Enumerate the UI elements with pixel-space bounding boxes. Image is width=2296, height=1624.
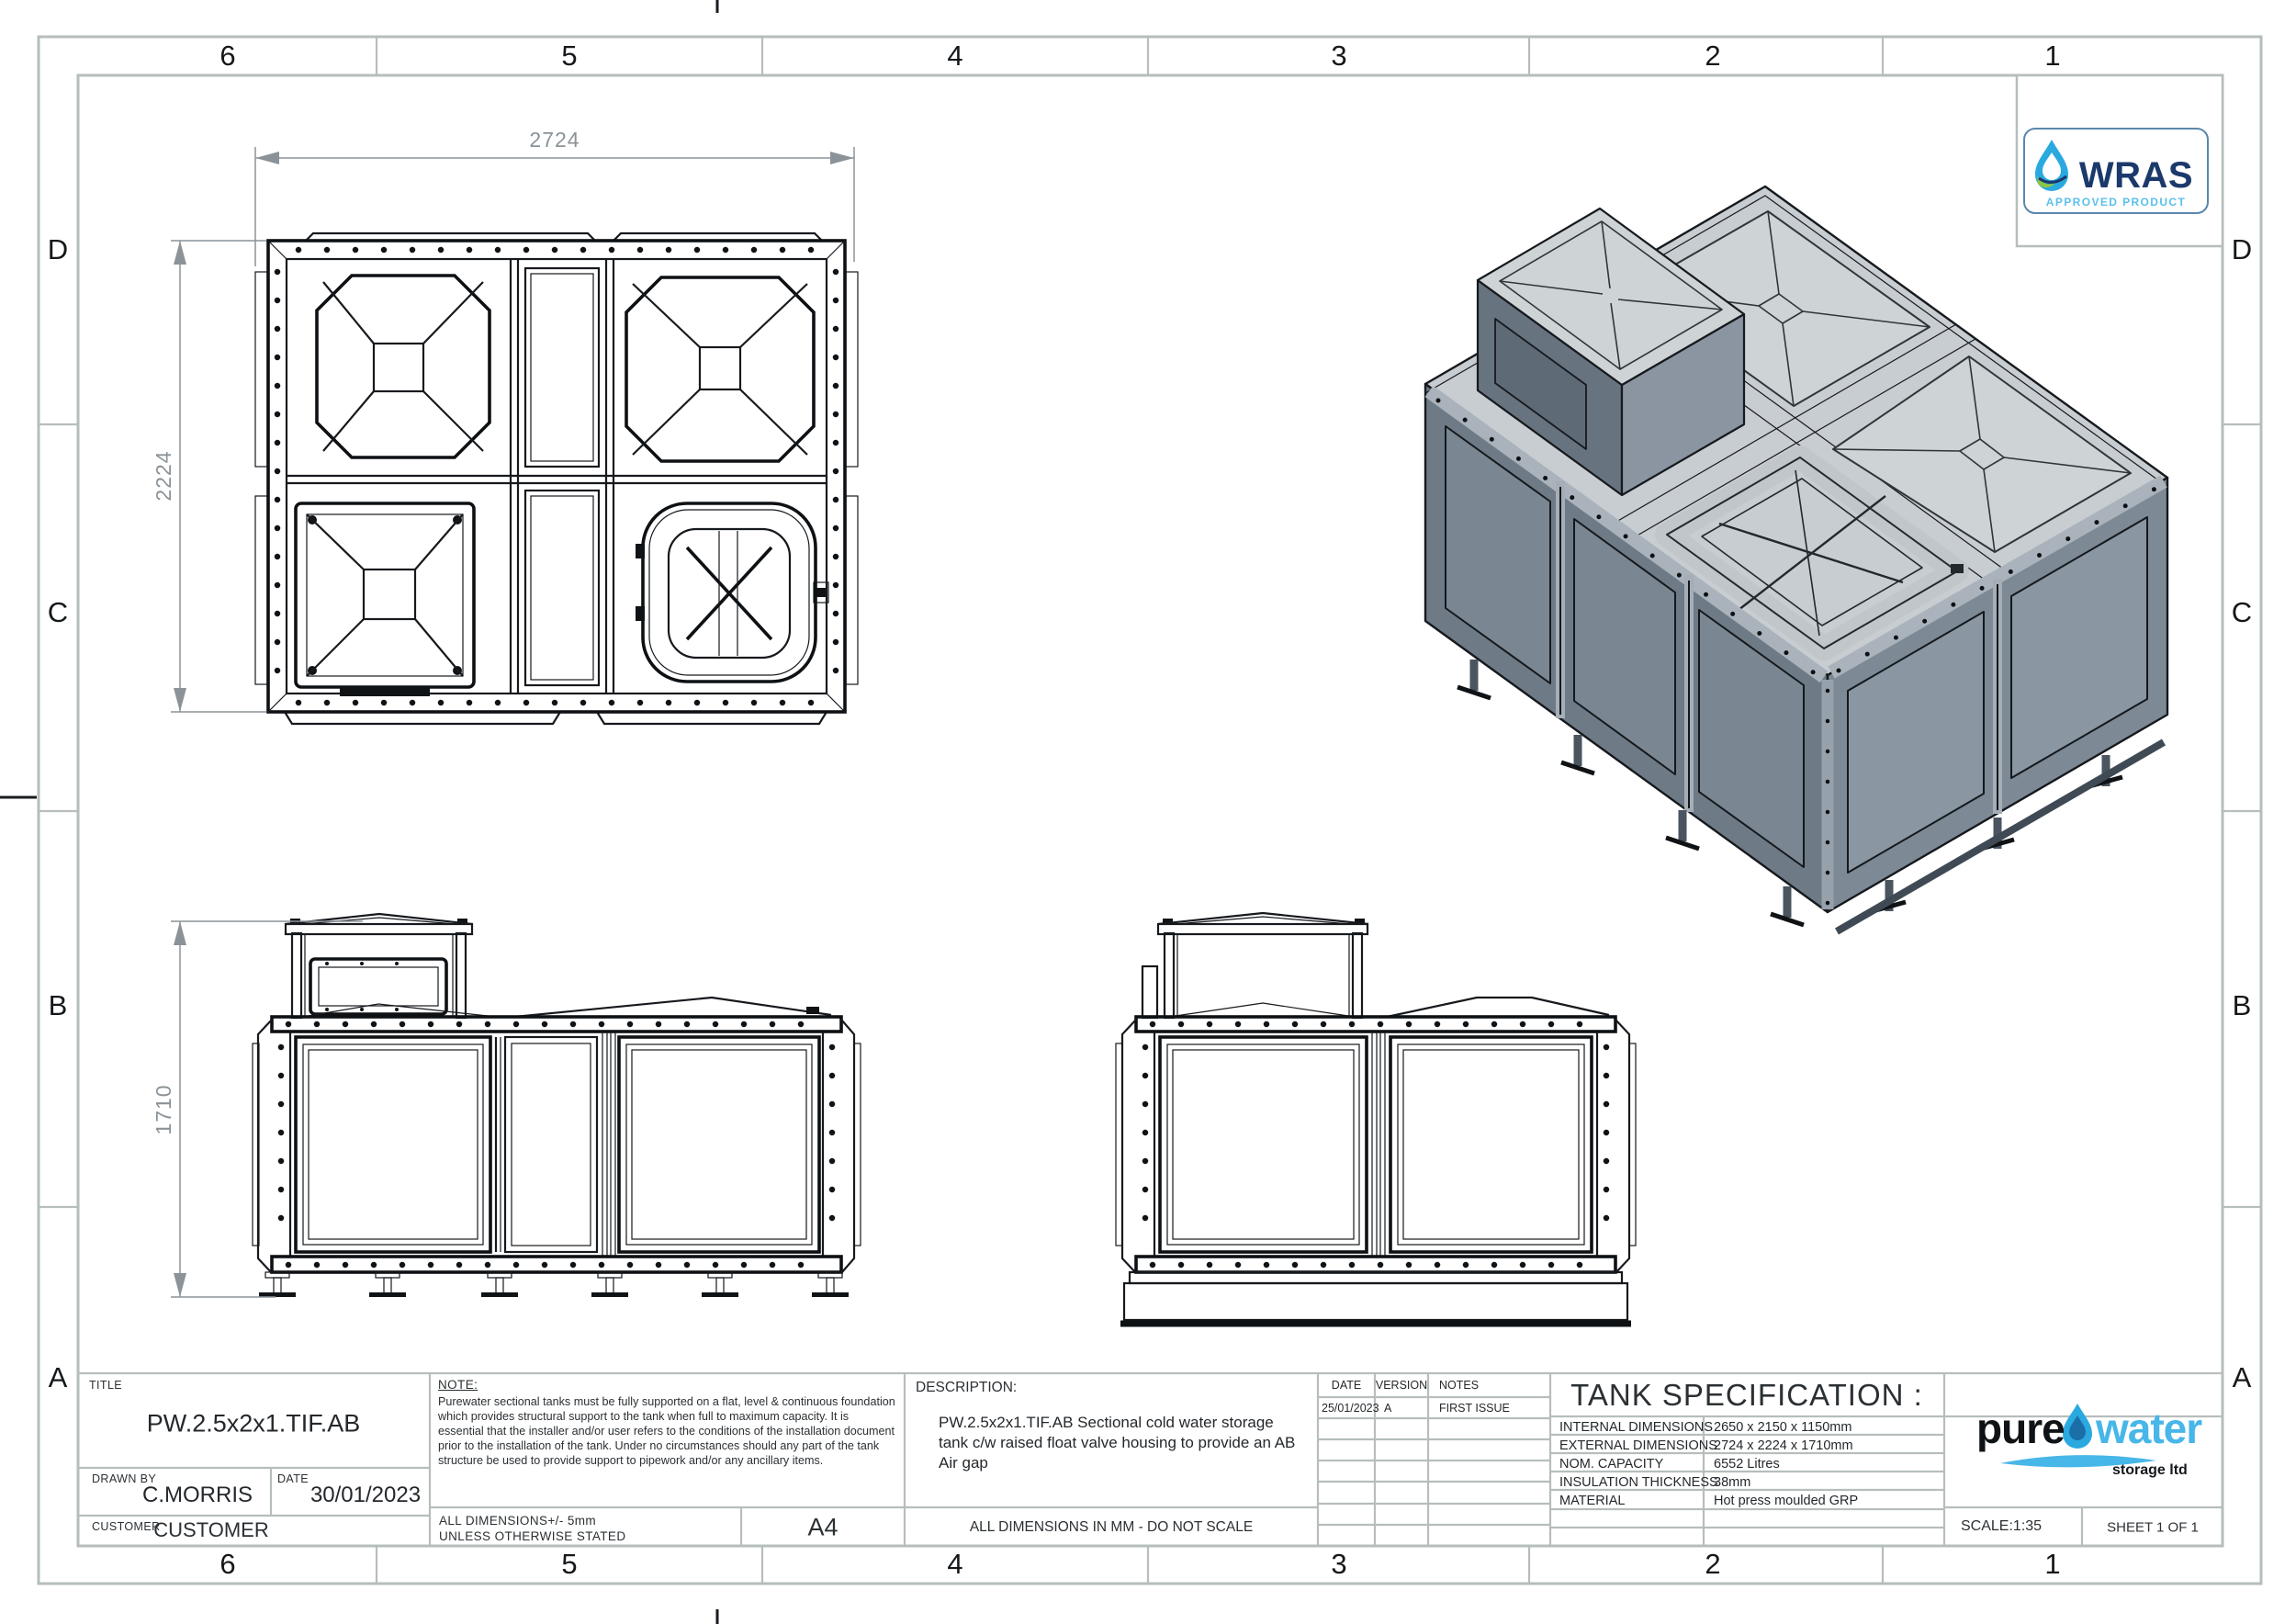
front-elevation-view: 1710 [152,914,861,1297]
spec-value: 2650 x 2150 x 1150mm [1714,1420,1851,1435]
zone-col: 5 [561,39,577,73]
zone-col: 2 [1705,1548,1720,1581]
zone-col: 4 [947,1548,962,1581]
customer-value: CUSTOMER [153,1518,269,1542]
dim-plan-depth: 2224 [152,450,175,501]
dim-plan-width: 2724 [529,128,580,152]
isometric-view [1425,186,2167,931]
note-label: NOTE: [438,1378,478,1392]
customer-label: CUSTOMER [92,1520,161,1533]
wras-name: WRAS [2079,155,2193,196]
zone-col: 1 [2044,1548,2060,1581]
zone-col: 1 [2044,39,2060,73]
logo-pure: pure [1976,1404,2065,1453]
zone-row: B [2233,989,2252,1022]
wras-subtitle: APPROVED PRODUCT [2046,196,2186,209]
spec-value: 2724 x 2224 x 1710mm [1714,1438,1853,1453]
date-value: 30/01/2023 [310,1483,421,1508]
spec-label: EXTERNAL DIMENSIONS [1559,1438,1717,1453]
wras-logo: WRAS APPROVED PRODUCT [2017,75,2223,246]
dims-note: ALL DIMENSIONS IN MM - DO NOT SCALE [970,1519,1253,1536]
adjustable-feet [259,1272,849,1297]
spec-label: INTERNAL DIMENSIONS [1559,1420,1713,1435]
drawing-linework: 2724 2224 [0,0,2296,1624]
float-valve-housing-plan [296,503,474,696]
float-valve-housing-front [286,914,472,1018]
tolerance-line1: ALL DIMENSIONS+/- 5mm [439,1514,596,1528]
zone-row: C [2232,596,2252,629]
paper-size: A4 [807,1514,838,1542]
zone-col: 3 [1331,1548,1346,1581]
rev-date: 25/01/2023 [1322,1402,1379,1415]
drawn-by-value: C.MORRIS [142,1483,253,1508]
scale-value: SCALE:1:35 [1961,1518,2042,1535]
roof-panel-top-right [626,277,814,461]
zone-col: 4 [947,39,962,73]
rev-version: A [1384,1402,1391,1415]
zone-row: B [49,989,68,1022]
zone-row: A [2233,1361,2252,1394]
rev-header-date: DATE [1332,1379,1361,1392]
description-label: DESCRIPTION: [916,1380,1017,1396]
drawing-sheet: 2724 2224 [0,0,2296,1624]
side-elevation-view [1116,913,1636,1324]
spec-value: 6552 Litres [1714,1457,1780,1472]
title-label: TITLE [89,1379,122,1392]
zone-col: 3 [1331,39,1346,73]
zone-row: D [48,233,68,266]
plinth-base [1120,1272,1631,1324]
spec-title: TANK SPECIFICATION : [1570,1378,1923,1413]
zone-col: 6 [219,39,235,73]
plan-dimensions: 2724 2224 [152,128,854,712]
access-hatch-plan [636,503,828,682]
note-text: Purewater sectional tanks must be fully … [438,1394,897,1468]
spec-value: Hot press moulded GRP [1714,1494,1858,1508]
drawing-title: PW.2.5x2x1.TIF.AB [147,1410,361,1438]
rev-header-notes: NOTES [1439,1379,1479,1392]
zone-row: D [2232,233,2252,266]
zone-col: 2 [1705,39,1720,73]
roof-panel-top-left [317,276,490,457]
description-text: PW.2.5x2x1.TIF.AB Sectional cold water s… [939,1413,1301,1473]
spec-label: INSULATION THICKNESS [1559,1475,1718,1490]
logo-water: water [2096,1404,2201,1453]
rev-header-version: VERSION [1376,1379,1427,1392]
sheet-number: SHEET 1 OF 1 [2107,1520,2199,1536]
plan-view: 2724 2224 [152,128,858,724]
spec-label: NOM. CAPACITY [1559,1457,1663,1472]
zone-col: 5 [561,1548,577,1581]
tolerance-line2: UNLESS OTHERWISE STATED [439,1529,625,1543]
spec-value: 38mm [1714,1475,1750,1490]
date-label: DATE [277,1472,309,1485]
rev-notes: FIRST ISSUE [1439,1402,1510,1415]
zone-row: A [49,1361,68,1394]
float-valve-housing-side [1142,913,1368,1018]
spec-label: MATERIAL [1559,1494,1625,1508]
zone-col: 6 [219,1548,235,1581]
zone-row: C [48,596,68,629]
logo-storage-ltd: storage ltd [2112,1462,2188,1479]
dim-height: 1710 [152,1084,175,1134]
